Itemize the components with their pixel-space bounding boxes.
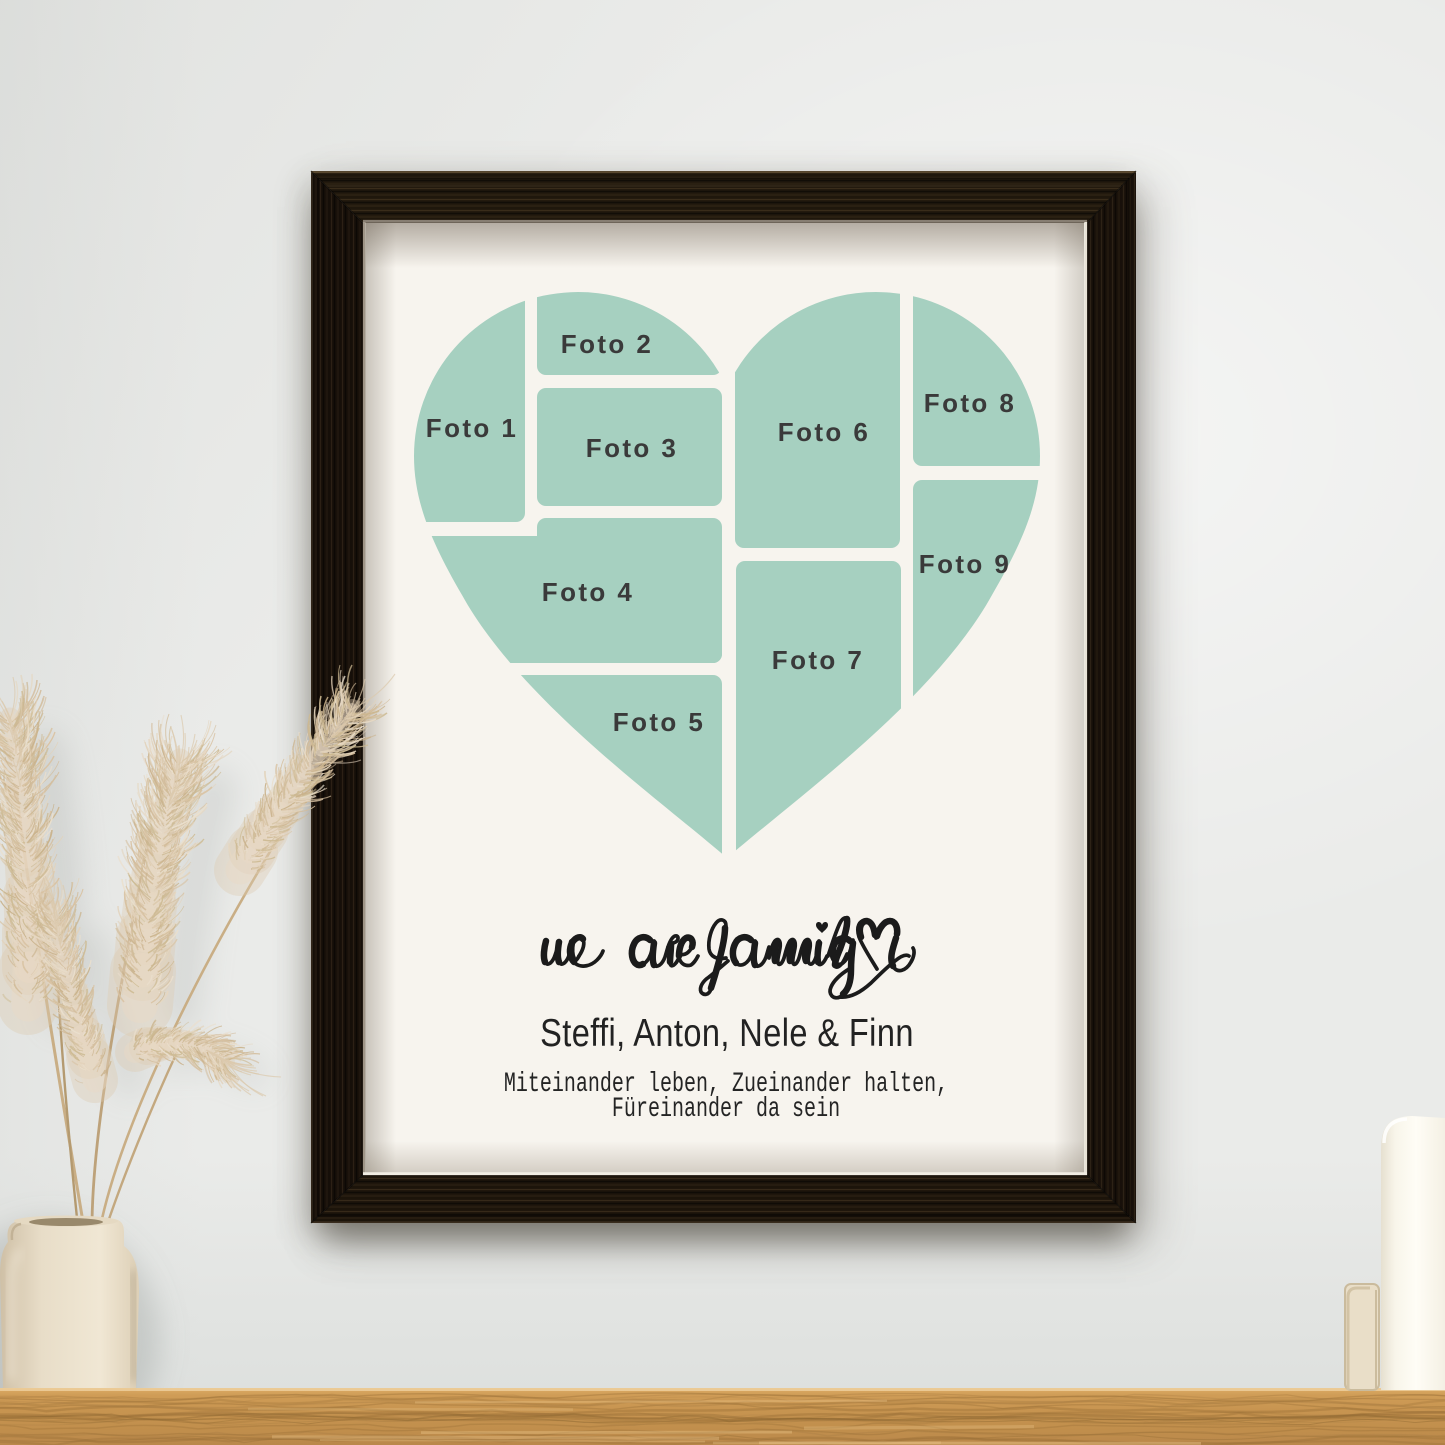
svg-text:Foto 6: Foto 6 bbox=[778, 417, 870, 447]
svg-text:Foto 3: Foto 3 bbox=[586, 433, 678, 463]
svg-text:Steffi, Anton, Nele & Finn: Steffi, Anton, Nele & Finn bbox=[540, 1011, 914, 1054]
svg-text:Foto 4: Foto 4 bbox=[542, 577, 634, 607]
svg-text:Foto 1: Foto 1 bbox=[426, 413, 518, 443]
svg-text:Foto 9: Foto 9 bbox=[919, 549, 1011, 579]
svg-text:Foto 2: Foto 2 bbox=[561, 329, 653, 359]
svg-text:Foto 7: Foto 7 bbox=[772, 645, 864, 675]
svg-text:Füreinander da sein: Füreinander da sein bbox=[612, 1094, 840, 1125]
svg-text:Foto 5: Foto 5 bbox=[613, 707, 705, 737]
svg-text:Foto 8: Foto 8 bbox=[924, 388, 1016, 418]
